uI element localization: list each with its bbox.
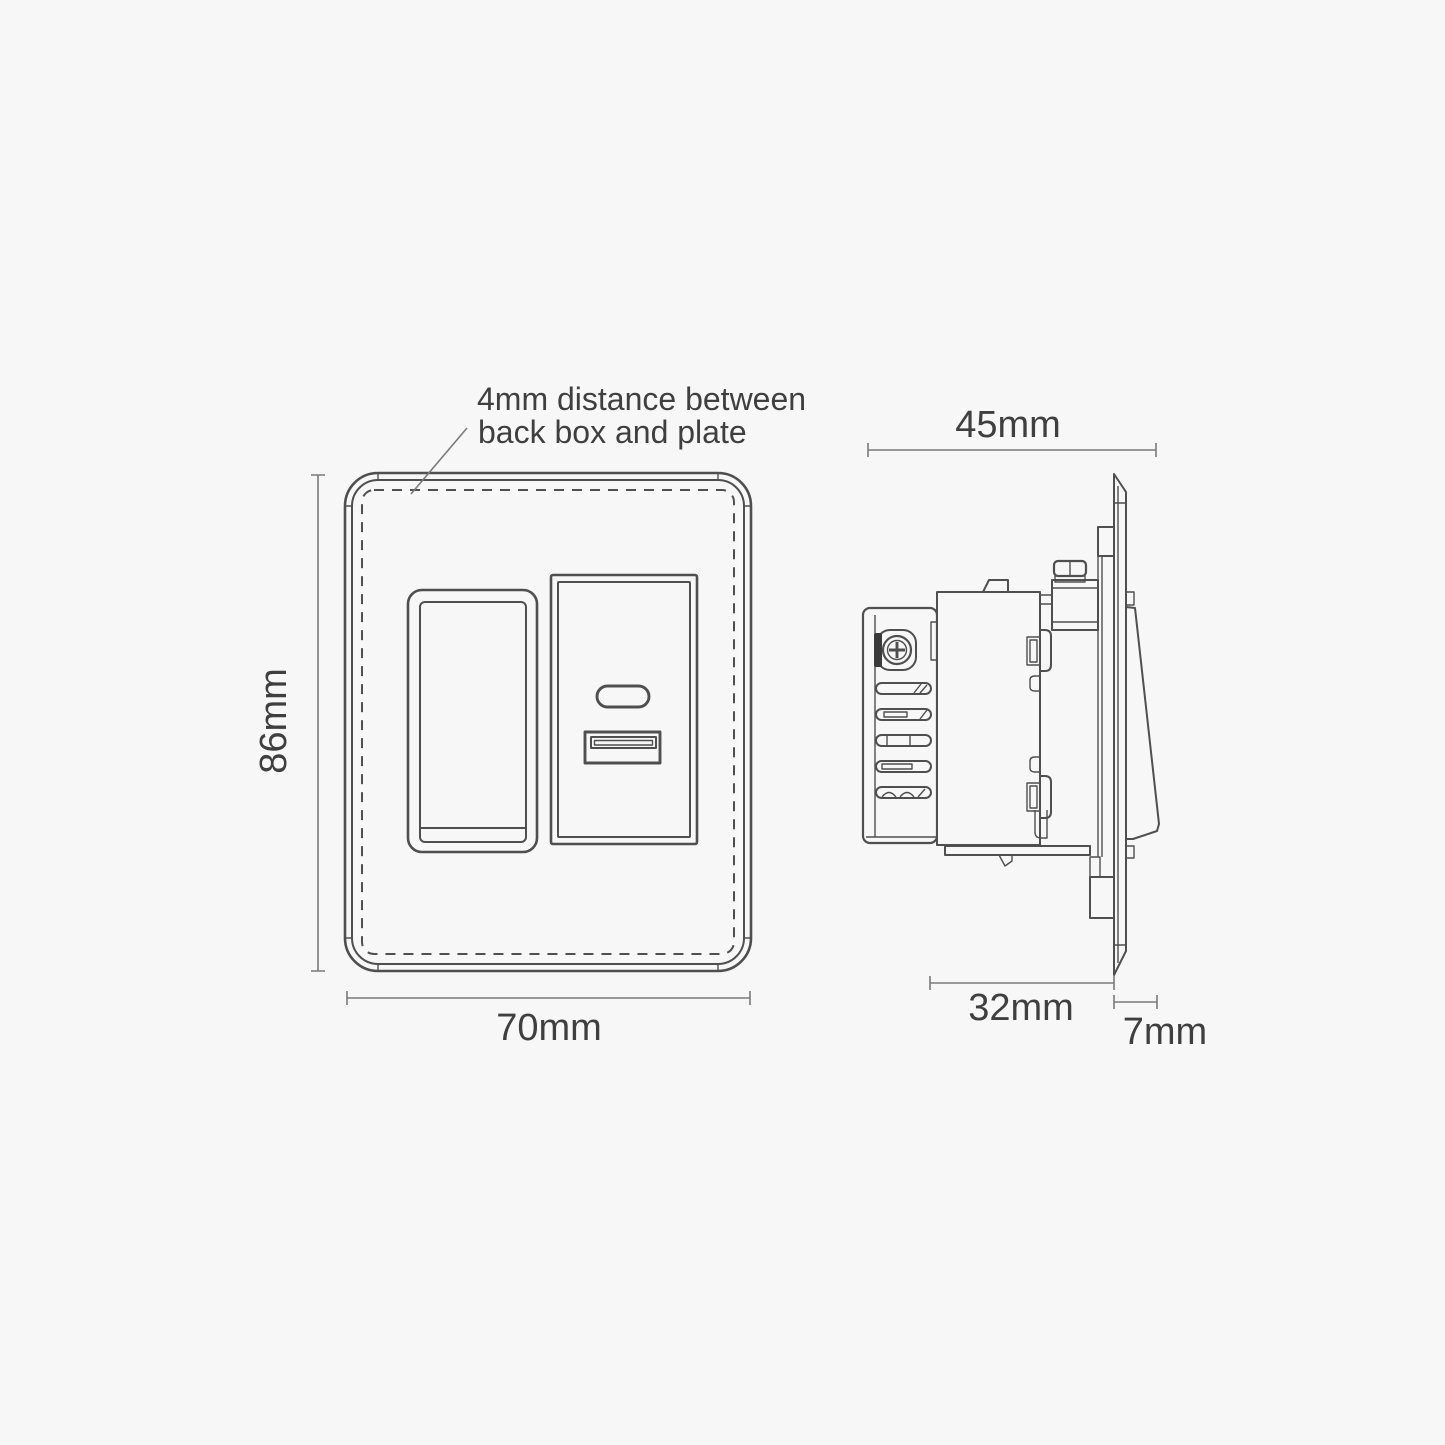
mounting-bracket-step (1090, 857, 1100, 877)
width-dimension-line (347, 991, 750, 1005)
height-dimension-label: 86mm (253, 668, 295, 774)
fixing-screw-block (1040, 561, 1098, 630)
mounting-bracket-bottom-block (1090, 877, 1115, 918)
width-dimension-label: 70mm (496, 1007, 602, 1049)
mechanism-bottom-rail (945, 846, 1090, 855)
usb-module-outline (551, 575, 697, 844)
mechanism-bottom-hook (999, 855, 1012, 866)
dimension-diagram-page: 86mm 70mm 4mm distance between back box … (0, 0, 1445, 1445)
plate-depth-dimension: 7mm (1114, 995, 1207, 1053)
annotation-line-2: back box and plate (478, 414, 747, 450)
plate-depth-dimension-line (1114, 995, 1157, 1009)
fixing-block-arm (1040, 595, 1052, 604)
terminal-screw-clamp (874, 633, 882, 667)
backbox-depth-dimension: 32mm (930, 976, 1114, 1029)
side-view: 45mm (863, 404, 1207, 1053)
mechanism-body-outline (937, 592, 1040, 845)
lower-clamp-bump (1040, 776, 1051, 818)
back-box-side (863, 608, 937, 843)
overall-depth-label: 45mm (955, 404, 1061, 446)
height-dimension-line (311, 475, 325, 971)
faceplate-side-outline (1114, 474, 1126, 975)
mounting-bracket-rails (1098, 527, 1102, 857)
terminal-screw (874, 630, 916, 670)
rocker-side-bottom-tab (1126, 846, 1134, 858)
mechanism-top-tab (983, 580, 1008, 592)
front-view: 86mm 70mm (253, 473, 751, 1049)
height-dimension: 86mm (253, 475, 325, 971)
plate-depth-label: 7mm (1123, 1011, 1207, 1053)
overall-depth-dimension: 45mm (868, 404, 1156, 457)
rocker-switch-front (408, 590, 537, 852)
dimension-diagram: 86mm 70mm 4mm distance between back box … (0, 0, 1445, 1445)
backbox-depth-label: 32mm (968, 987, 1074, 1029)
rocker-switch-side (1126, 592, 1159, 858)
annotation-line-1: 4mm distance between (477, 381, 806, 417)
mounting-bracket-top-block (1098, 527, 1114, 556)
faceplate-side (1114, 474, 1126, 975)
rocker-side-top-tab (1126, 592, 1134, 605)
upper-clamp-bump (1040, 630, 1051, 671)
rocker-side-wedge (1126, 607, 1159, 839)
width-dimension: 70mm (347, 991, 750, 1049)
